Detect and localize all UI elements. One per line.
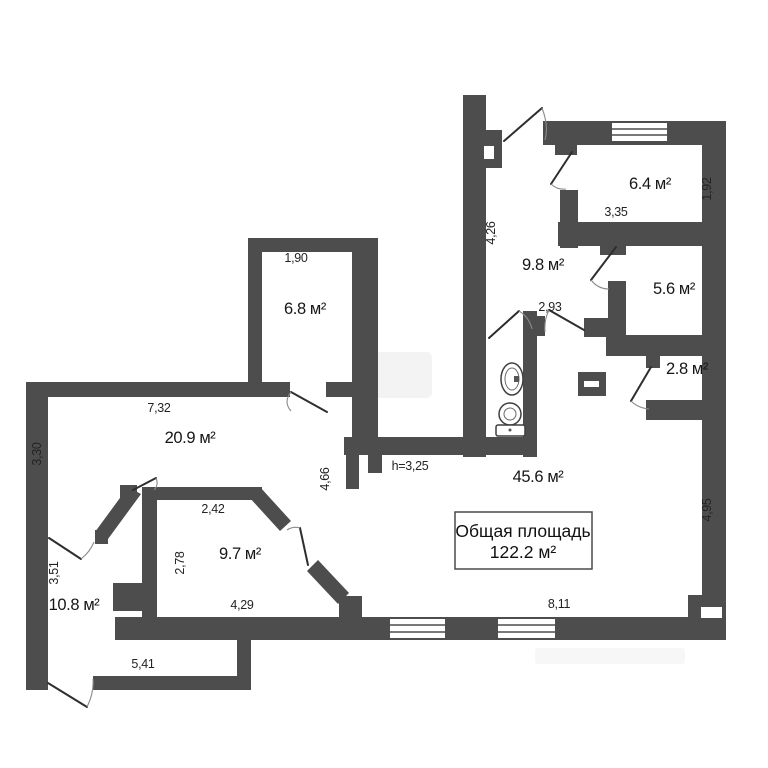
dimension-label: 4,26 [484, 221, 498, 244]
room-area-label: 20.9 м² [165, 429, 217, 447]
dimension-label: 2,78 [173, 551, 187, 574]
floor-plan: 6.8 м² 9.8 м² 6.4 м² 5.6 м² 2.8 м² 20.9 … [0, 0, 768, 768]
wall-niche [701, 607, 722, 618]
room-area-label: 6.8 м² [284, 300, 327, 318]
dimension-label: 4,95 [700, 498, 714, 521]
room-area-label: 6.4 м² [629, 175, 672, 193]
room-area-label: 9.8 м² [522, 256, 565, 274]
floor-plan-canvas: 6.8 м² 9.8 м² 6.4 м² 5.6 м² 2.8 м² 20.9 … [0, 0, 768, 768]
window [612, 123, 667, 141]
window [498, 619, 555, 638]
room-area-label: 45.6 м² [513, 468, 565, 486]
dimension-label: 7,32 [147, 401, 170, 415]
dimension-label: 1,90 [284, 251, 307, 265]
room-area-label: 5.6 м² [653, 280, 696, 298]
dimension-label: h=3,25 [392, 459, 429, 473]
watermark [535, 648, 685, 664]
sink-icon [501, 363, 523, 395]
dimension-label: 4,66 [318, 467, 332, 490]
dimension-label: 3,35 [604, 205, 627, 219]
dimension-label: 2,93 [538, 300, 561, 314]
total-area-box: Общая площадь 122.2 м² [455, 512, 592, 569]
dimension-label: 5,41 [131, 657, 154, 671]
window [390, 619, 445, 638]
dimension-label: 4,29 [230, 598, 253, 612]
toilet-icon [496, 403, 525, 436]
room-area-label: 10.8 м² [49, 596, 101, 614]
dimension-label: 3,51 [47, 561, 61, 584]
room-area-label: 9.7 м² [219, 545, 262, 563]
total-area-title: Общая площадь [455, 521, 590, 541]
room-area-label: 2.8 м² [666, 360, 709, 378]
vent-shaft-icon [578, 372, 606, 396]
dimension-label: 1,92 [700, 177, 714, 200]
dimension-label: 3,30 [30, 442, 44, 465]
walls [26, 95, 726, 690]
wall-niche [484, 146, 494, 159]
dimension-label: 8,11 [548, 597, 571, 611]
total-area-value: 122.2 м² [490, 542, 557, 562]
dimension-label: 2,42 [201, 502, 224, 516]
